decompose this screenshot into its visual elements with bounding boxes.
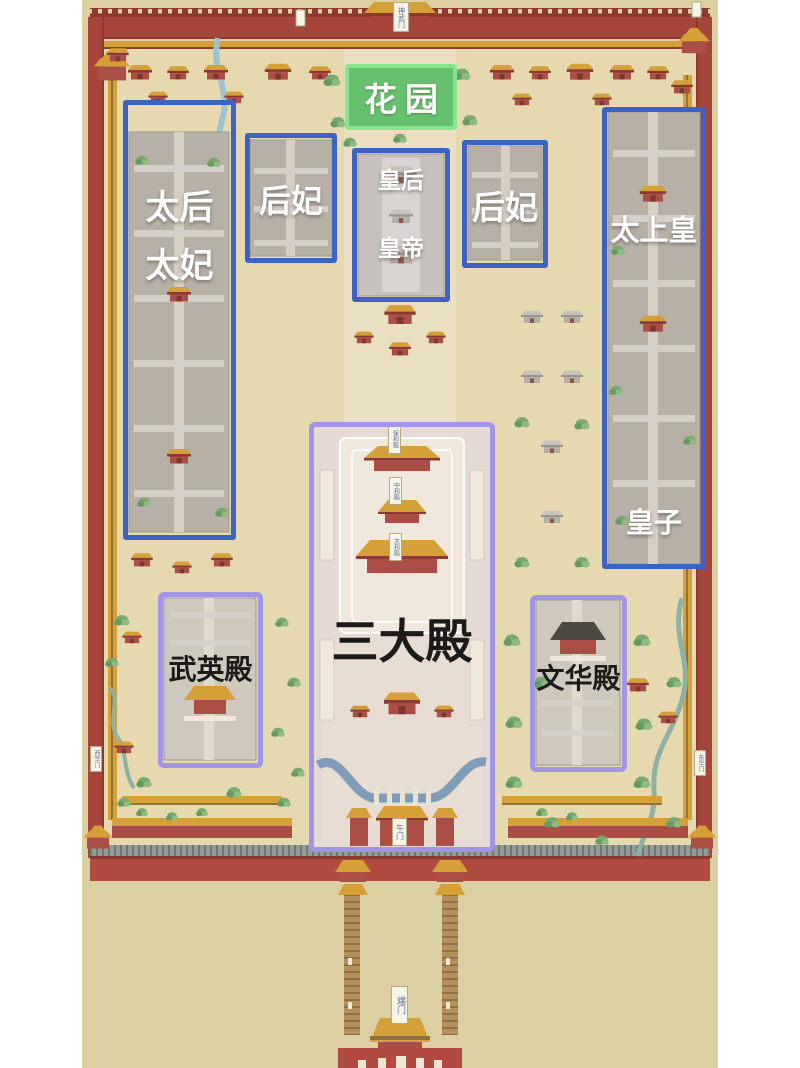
label-consorts-west: 后妃 (250, 184, 332, 219)
region-box-retired-emperor: 太上皇 皇子 (602, 107, 706, 569)
label-garden: 花园 (356, 73, 446, 121)
region-box-garden: 花园 (345, 64, 457, 130)
plaque-duan-gate: 端门 (391, 986, 408, 1024)
region-box-empress-dowager: 太后 太妃 (123, 100, 236, 540)
label-three-great-halls: 三大殿 (314, 617, 490, 669)
plaque-xihua-gate: 西华门 (90, 746, 102, 772)
label-consorts-east: 后妃 (467, 190, 543, 226)
label-wenhua-hall: 文华殿 (535, 664, 622, 695)
forbidden-city-map: 神武门 保和殿 中和殿 太和殿 午门 端门 西华门 东华门 花园 太后 太妃 后… (82, 0, 718, 1068)
plaque-shenwu-gate: 神武门 (393, 2, 409, 32)
region-box-consorts-east: 后妃 (462, 140, 548, 268)
page: 神武门 保和殿 中和殿 太和殿 午门 端门 西华门 东华门 花园 太后 太妃 后… (0, 0, 800, 1068)
region-box-consorts-west: 后妃 (245, 133, 337, 263)
plaque-donghua-gate: 东华门 (694, 750, 706, 776)
label-empress: 皇后 (357, 169, 445, 194)
label-emperor: 皇帝 (357, 237, 445, 262)
label-empress-dowager-line2: 太妃 (128, 248, 231, 285)
region-box-wuying-hall: 武英殿 (158, 592, 263, 768)
label-retired-emperor: 太上皇 (607, 215, 701, 247)
label-empress-dowager-line1: 太后 (128, 190, 231, 227)
label-wuying-hall: 武英殿 (163, 655, 258, 686)
label-princes: 皇子 (607, 508, 701, 539)
region-box-imperial-couple: 皇后 皇帝 (352, 148, 450, 302)
region-box-wenhua-hall: 文华殿 (530, 595, 627, 772)
region-box-three-great-halls: 三大殿 (309, 422, 495, 852)
